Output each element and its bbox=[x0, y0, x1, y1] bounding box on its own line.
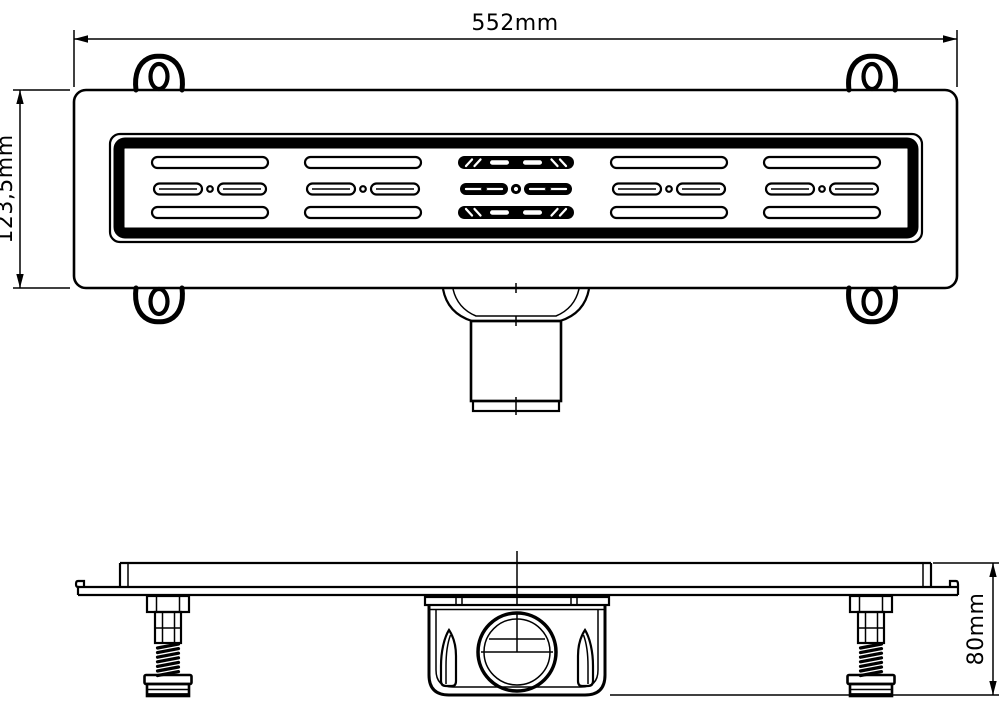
drain-trap bbox=[425, 597, 609, 695]
dimension-height-label: 80mm bbox=[964, 593, 989, 666]
dimension-width-label: 552mm bbox=[471, 11, 558, 36]
dimension-height: 80mm bbox=[610, 563, 999, 695]
mounting-clip-top-right bbox=[849, 56, 896, 90]
trap-tab-right bbox=[578, 630, 593, 686]
adjustable-foot-right bbox=[848, 596, 895, 696]
outlet-funnel bbox=[443, 283, 589, 326]
grate-slot-group-center bbox=[458, 156, 574, 219]
grate-slot-group-4 bbox=[611, 157, 727, 218]
dimension-width: 552mm bbox=[74, 11, 957, 87]
mounting-clip-bottom-right bbox=[849, 288, 896, 322]
grate-frame bbox=[110, 134, 922, 242]
grate-slot-group-5 bbox=[764, 157, 880, 218]
dimension-depth: 123,5mm bbox=[0, 90, 70, 288]
adjustable-foot-left bbox=[145, 596, 192, 696]
outlet-pipe bbox=[471, 321, 561, 415]
linear-drain-drawing: 552mm 123,5mm bbox=[0, 0, 1000, 726]
mounting-clip-top-left bbox=[136, 56, 183, 90]
trap-tab-left bbox=[441, 630, 456, 686]
dimension-depth-label: 123,5mm bbox=[0, 134, 18, 243]
grate-slot-group-1 bbox=[152, 157, 268, 218]
mounting-clip-bottom-left bbox=[136, 288, 183, 322]
top-view: 552mm 123,5mm bbox=[0, 11, 957, 415]
technical-drawing-canvas: 552mm 123,5mm bbox=[0, 0, 1000, 726]
grate-slot-group-2 bbox=[305, 157, 421, 218]
side-view: 80mm bbox=[76, 551, 999, 696]
